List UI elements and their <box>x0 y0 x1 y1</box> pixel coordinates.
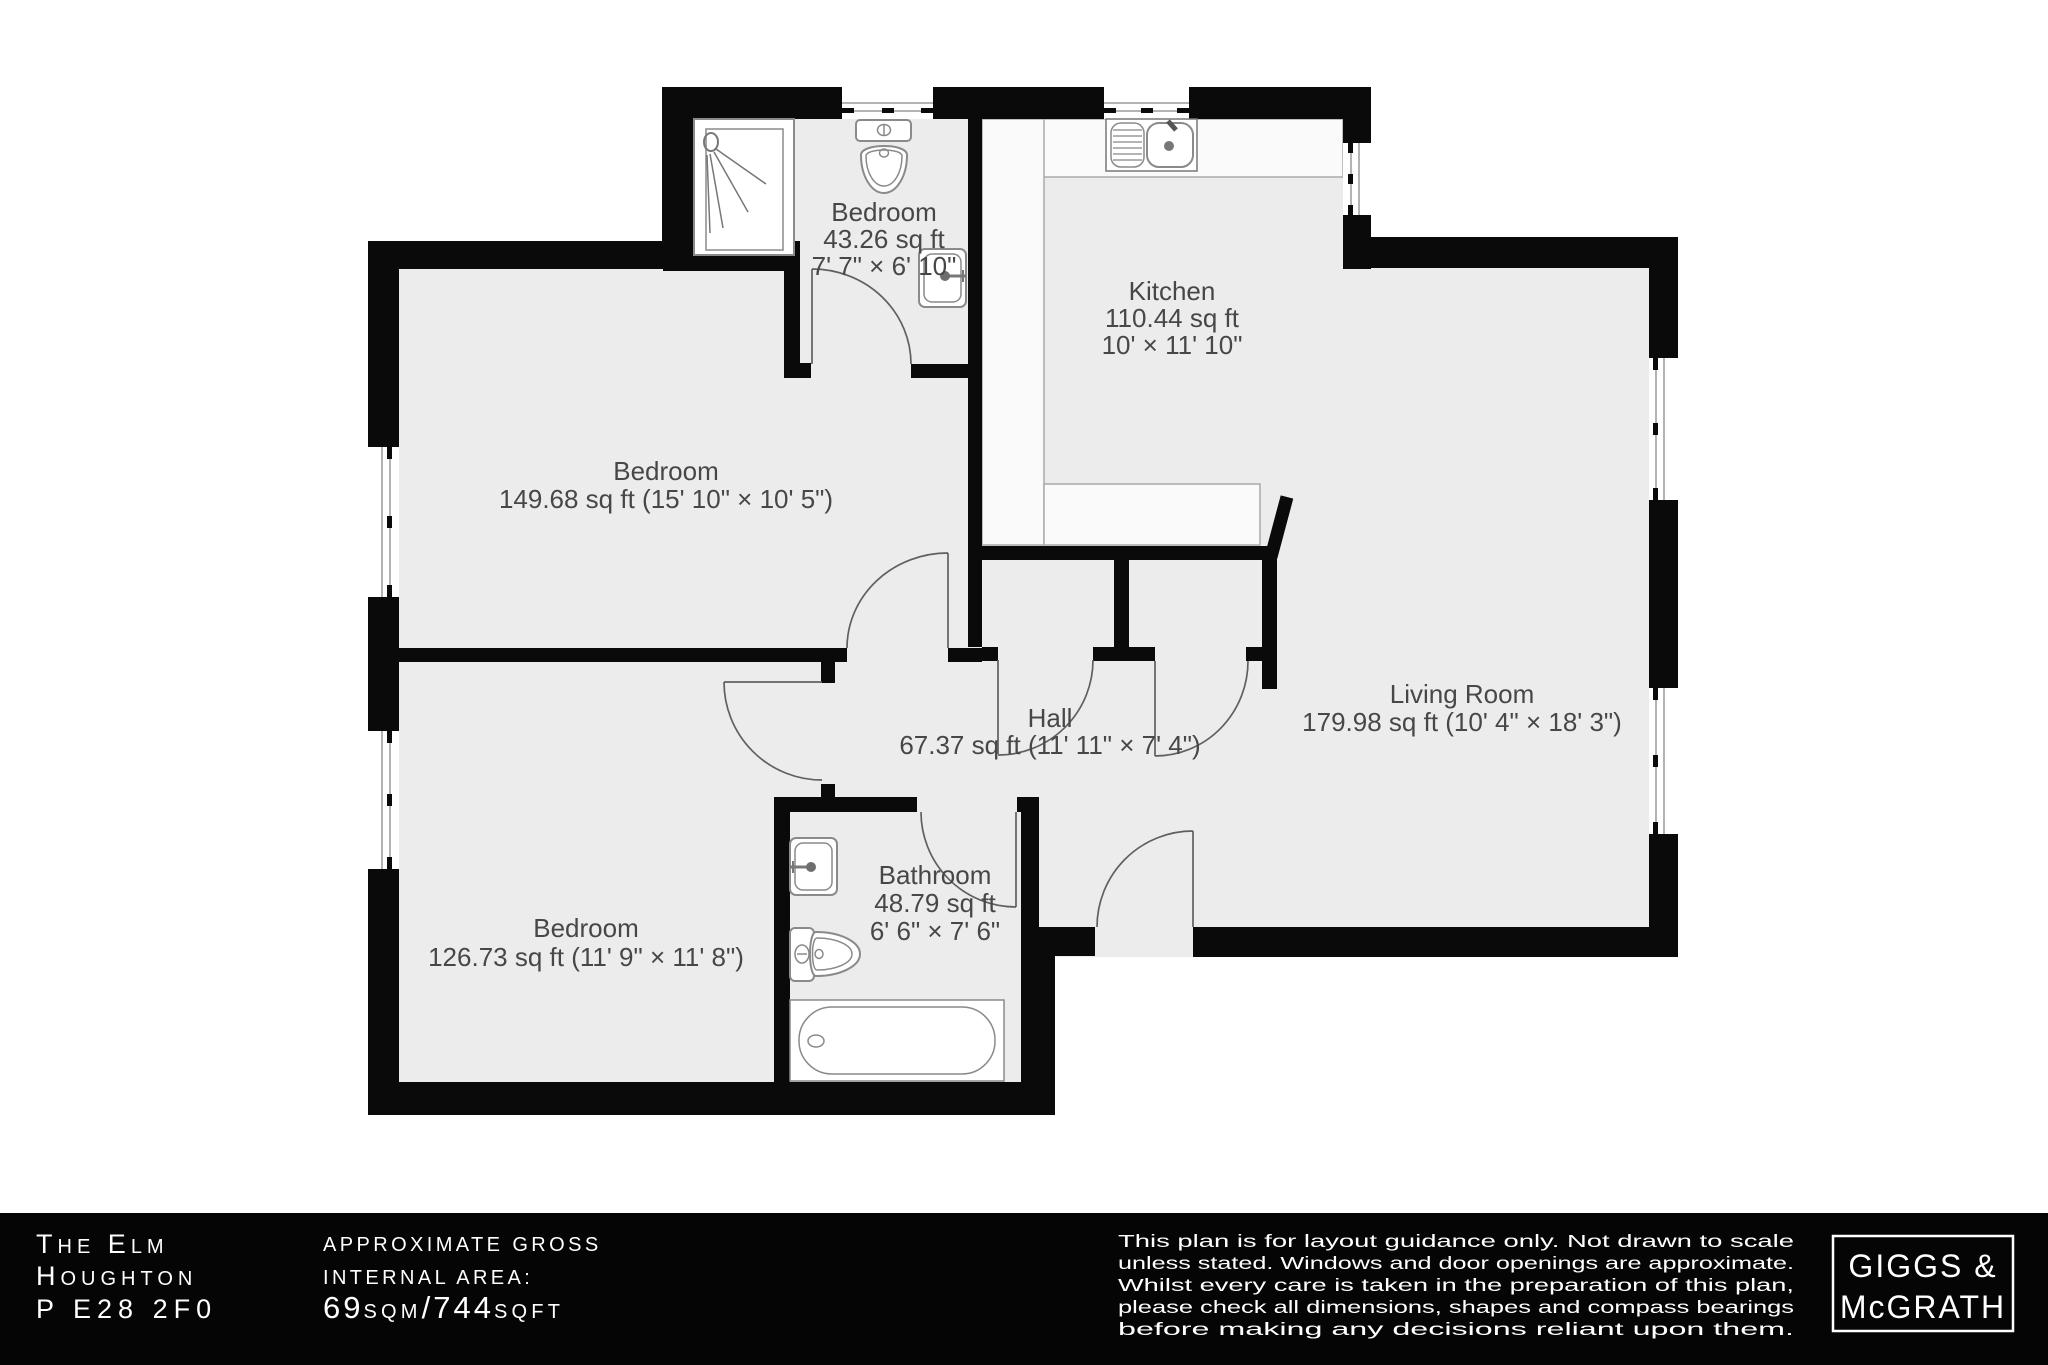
svg-text:10' × 11' 10": 10' × 11' 10" <box>1102 330 1243 360</box>
svg-text:Hall: Hall <box>1028 703 1073 733</box>
svg-text:43.26 sq ft: 43.26 sq ft <box>823 224 945 254</box>
svg-text:Bedroom: Bedroom <box>831 197 937 227</box>
svg-text:179.98 sq ft (10' 4" × 18' 3"): 179.98 sq ft (10' 4" × 18' 3") <box>1302 707 1622 737</box>
svg-text:126.73 sq ft (11' 9" × 11' 8"): 126.73 sq ft (11' 9" × 11' 8") <box>428 942 744 972</box>
svg-text:Bedroom: Bedroom <box>533 913 639 943</box>
svg-text:GIGGS &: GIGGS & <box>1848 1248 1997 1284</box>
svg-text:before making any decisions re: before making any decisions reliant upon… <box>1118 1319 1794 1339</box>
svg-text:Kitchen: Kitchen <box>1129 276 1216 306</box>
svg-text:67.37 sq ft (11' 11" × 7' 4"): 67.37 sq ft (11' 11" × 7' 4") <box>899 730 1200 760</box>
svg-text:unless stated. Windows and doo: unless stated. Windows and door openings… <box>1118 1253 1794 1273</box>
svg-text:APPROXIMATE GROSS: APPROXIMATE GROSS <box>323 1234 602 1256</box>
svg-text:Living Room: Living Room <box>1390 679 1535 709</box>
svg-text:P E28 2F0: P E28 2F0 <box>36 1294 217 1324</box>
svg-text:Bathroom: Bathroom <box>879 860 992 890</box>
svg-text:Bedroom: Bedroom <box>613 456 719 486</box>
svg-text:McGRATH: McGRATH <box>1840 1289 2006 1325</box>
svg-text:INTERNAL AREA:: INTERNAL AREA: <box>323 1267 533 1289</box>
svg-text:6' 6" × 7' 6": 6' 6" × 7' 6" <box>870 916 1000 946</box>
svg-text:7' 7" × 6' 10": 7' 7" × 6' 10" <box>812 251 957 281</box>
svg-text:110.44 sq ft: 110.44 sq ft <box>1105 303 1240 333</box>
svg-text:149.68 sq ft (15' 10" × 10' 5": 149.68 sq ft (15' 10" × 10' 5") <box>499 484 833 514</box>
svg-text:48.79 sq ft: 48.79 sq ft <box>874 888 996 918</box>
svg-text:Whilst every care is taken in: Whilst every care is taken in the prepar… <box>1118 1275 1794 1295</box>
svg-text:please check all dimensions, s: please check all dimensions, shapes and … <box>1118 1297 1794 1317</box>
svg-text:This plan is for layout guidan: This plan is for layout guidance only. N… <box>1118 1231 1794 1251</box>
